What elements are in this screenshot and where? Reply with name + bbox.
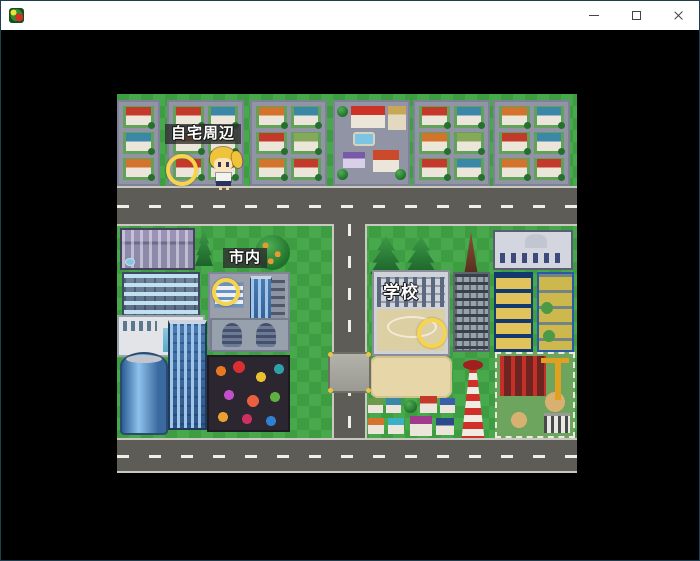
shopping-district (207, 355, 290, 432)
game-screen[interactable]: 自宅周辺 市内 学校 (1, 30, 699, 560)
blue-skyscraper (168, 320, 207, 430)
house (499, 158, 530, 180)
commercial-block (333, 100, 410, 186)
house (291, 158, 322, 180)
shop-sign (343, 152, 365, 168)
bridge-corner-marker (366, 388, 371, 393)
house (454, 132, 485, 154)
house (534, 158, 565, 180)
school-marker[interactable] (417, 318, 447, 348)
bridge-corner-marker (366, 352, 371, 357)
town-map[interactable]: 自宅周辺 市内 学校 (117, 94, 577, 473)
window-controls (573, 1, 699, 30)
window-row (500, 253, 566, 263)
home-marker[interactable] (166, 154, 198, 186)
house (123, 158, 154, 180)
maximize-button[interactable] (615, 1, 657, 30)
house (123, 106, 154, 128)
road-centerline (348, 224, 351, 442)
school-label[interactable]: 学校 (383, 283, 419, 303)
house (291, 132, 322, 154)
cedar-tree (457, 232, 485, 274)
road-horizontal-bottom (117, 438, 577, 473)
gray-highrise (453, 272, 490, 352)
stone-bridge (328, 352, 371, 393)
tree (337, 106, 348, 117)
player-face (214, 158, 232, 171)
house (386, 398, 401, 413)
close-icon (673, 10, 684, 21)
house (454, 106, 485, 128)
radio-tower-hub (463, 360, 483, 370)
shop-red-roof (351, 106, 385, 128)
home-area-label[interactable]: 自宅周辺 (165, 124, 241, 144)
house (291, 106, 322, 128)
house (368, 418, 384, 434)
house (454, 158, 485, 180)
house (440, 398, 455, 413)
small-houses-row (368, 396, 458, 438)
civic-building (493, 230, 573, 270)
steel-frame (500, 356, 546, 396)
sand-lot (370, 356, 452, 398)
office-building (122, 272, 200, 317)
house (123, 132, 154, 154)
game-window: 自宅周辺 市内 学校 (0, 0, 700, 561)
minimize-icon (589, 15, 599, 16)
house (256, 132, 287, 154)
pine-tree (370, 236, 402, 274)
house (368, 398, 383, 413)
shop-tan (388, 106, 406, 130)
minimize-button[interactable] (573, 1, 615, 30)
tower-cap (126, 355, 162, 363)
tree (395, 169, 406, 180)
road-horizontal-top (117, 186, 577, 226)
player-eyes (218, 162, 221, 167)
round-tower (256, 323, 276, 347)
dome (525, 234, 547, 248)
city-marker[interactable] (212, 278, 240, 306)
house (256, 158, 287, 180)
house (499, 106, 530, 128)
crane-mast (555, 360, 561, 400)
house (436, 418, 454, 435)
cylinder-tower (120, 352, 168, 435)
road-centerline (117, 455, 577, 458)
house (410, 416, 432, 436)
mansion-building (120, 228, 195, 270)
department-store-yellow (494, 272, 533, 352)
tree (337, 169, 348, 180)
house (256, 106, 287, 128)
title-bar[interactable] (1, 1, 699, 30)
rpg-maker-game-icon[interactable] (9, 8, 24, 23)
house (419, 106, 450, 128)
residential-block (117, 100, 160, 186)
residential-block (413, 100, 490, 186)
residential-block (493, 100, 570, 186)
house (419, 132, 450, 154)
round-tower (222, 323, 242, 347)
house (534, 106, 565, 128)
bridge-corner-marker (328, 388, 333, 393)
residential-block (250, 100, 327, 186)
road-centerline (117, 205, 577, 208)
house (419, 158, 450, 180)
site-shed (544, 413, 570, 433)
fountain (125, 258, 135, 266)
construction-site (495, 352, 575, 438)
house (373, 150, 399, 172)
window-strip (123, 321, 157, 331)
radio-tower (458, 366, 488, 438)
player-legs (219, 186, 222, 190)
house (499, 132, 530, 154)
pine-tree (405, 236, 437, 274)
maximize-icon (632, 11, 641, 20)
twin-tower-office (210, 318, 290, 352)
road-vertical-center (332, 224, 367, 442)
bridge-corner-marker (328, 352, 333, 357)
crane-arm (541, 358, 569, 363)
house (534, 132, 565, 154)
pool (353, 132, 375, 146)
pine-tree (195, 230, 213, 266)
tree (404, 400, 417, 413)
player-character[interactable] (207, 146, 243, 190)
house (388, 418, 404, 434)
close-button[interactable] (657, 1, 699, 30)
house (420, 396, 437, 413)
market-building (537, 272, 574, 352)
city-label[interactable]: 市内 (223, 248, 267, 268)
